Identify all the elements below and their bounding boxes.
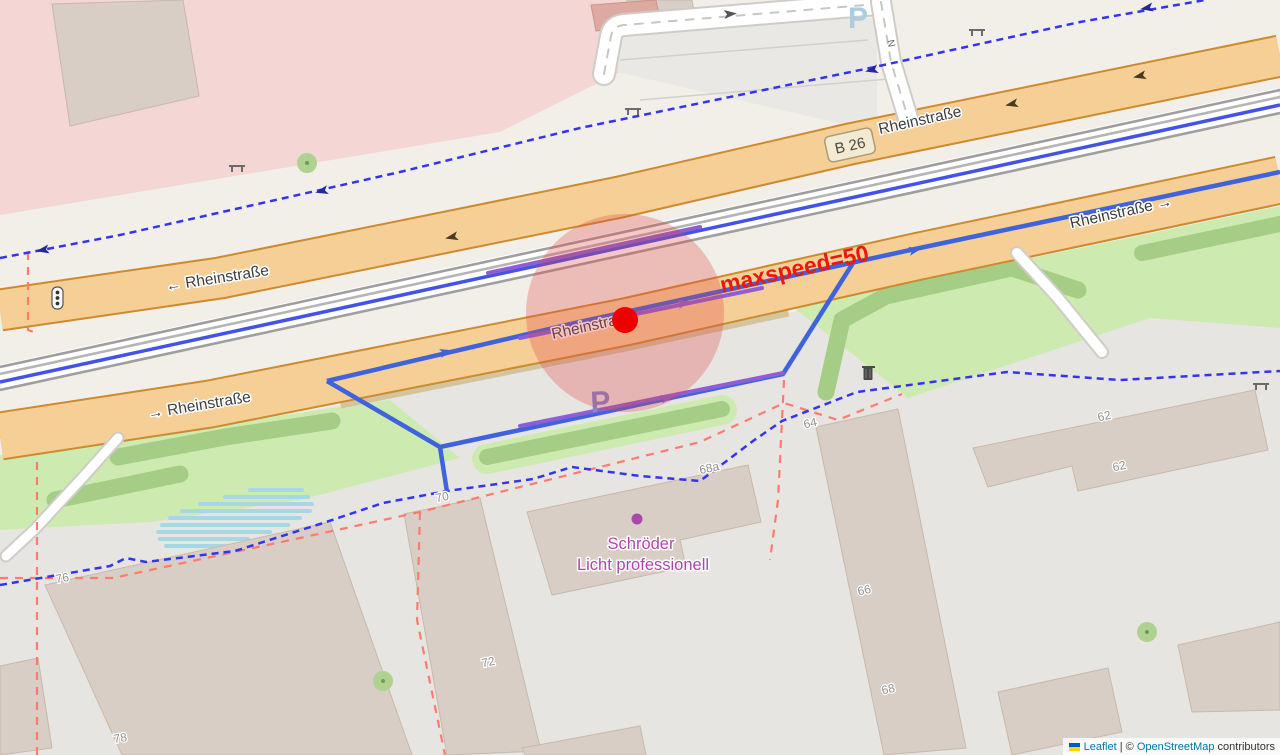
attribution-separator: | ©	[1117, 739, 1137, 755]
poi-name-line1: Schröder	[608, 535, 675, 553]
poi-name-line2: Licht professionell	[577, 556, 709, 574]
house-number: 78	[113, 730, 129, 746]
shop-poi-dot	[632, 514, 643, 525]
openstreetmap-link[interactable]: OpenStreetMap	[1137, 739, 1215, 755]
parking-icon-pale: P	[848, 2, 868, 35]
selected-node-marker[interactable]	[612, 307, 638, 333]
leaflet-link[interactable]: Leaflet	[1084, 739, 1117, 755]
traffic-signal-icon	[52, 287, 63, 309]
ukraine-flag-icon	[1069, 743, 1080, 751]
map-tiles: ← Rheinstraße Rheinstraße Rheinstraße → …	[0, 0, 1280, 755]
map-canvas[interactable]: ← Rheinstraße Rheinstraße Rheinstraße → …	[0, 0, 1280, 755]
attribution-suffix: contributors	[1214, 739, 1275, 755]
house-number: 76	[55, 570, 71, 586]
attribution-bar: Leaflet | © OpenStreetMap contributors	[1063, 738, 1280, 755]
